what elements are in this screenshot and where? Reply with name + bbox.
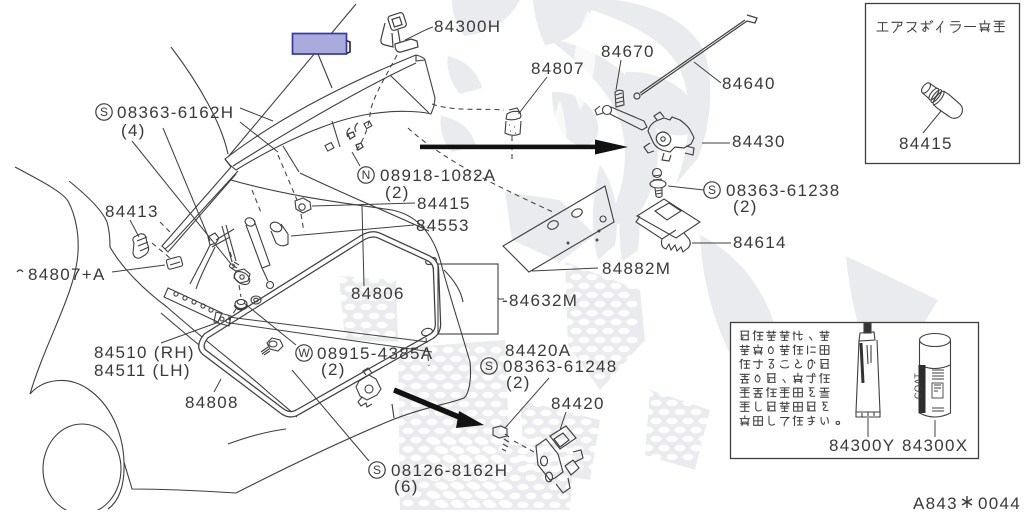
svg-text:84415: 84415	[417, 194, 471, 213]
svg-text:84300X: 84300X	[902, 436, 968, 455]
svg-text:W: W	[298, 346, 310, 360]
svg-text:84808: 84808	[185, 393, 239, 412]
svg-text:84430: 84430	[732, 132, 786, 151]
svg-text:84640: 84640	[722, 74, 776, 93]
svg-text:(2): (2)	[385, 183, 410, 202]
svg-text:84670: 84670	[601, 42, 655, 61]
svg-text:84807: 84807	[531, 59, 585, 78]
svg-text:84553: 84553	[416, 216, 470, 235]
svg-text:-84632M: -84632M	[502, 291, 578, 310]
svg-text:S: S	[373, 463, 381, 477]
svg-text:84882M: 84882M	[602, 259, 671, 278]
svg-text:COAT: COAT	[913, 373, 923, 399]
svg-text:N: N	[362, 168, 371, 182]
svg-text:84614: 84614	[733, 233, 787, 252]
svg-text:(2): (2)	[506, 373, 531, 392]
svg-text:84511 (LH): 84511 (LH)	[94, 361, 191, 380]
svg-text:84413: 84413	[105, 202, 159, 221]
svg-text:(6): (6)	[394, 477, 419, 496]
svg-text:A843: A843	[913, 494, 958, 510]
svg-text:(2): (2)	[321, 360, 346, 379]
svg-text:84415: 84415	[899, 134, 953, 153]
svg-text:0044: 0044	[978, 494, 1021, 510]
svg-text:(2): (2)	[733, 197, 758, 216]
svg-text:84510 (RH): 84510 (RH)	[94, 343, 195, 362]
svg-text:S: S	[708, 183, 716, 197]
svg-text:84806: 84806	[351, 284, 405, 303]
svg-text:08363-6162H: 08363-6162H	[117, 103, 234, 122]
svg-text:84420: 84420	[551, 394, 605, 413]
svg-text:84300Y: 84300Y	[829, 436, 895, 455]
svg-text:S: S	[485, 359, 493, 373]
svg-text:84807+A: 84807+A	[28, 265, 106, 284]
svg-text:(4): (4)	[121, 121, 146, 140]
svg-text:84300H: 84300H	[434, 17, 501, 36]
svg-text:S: S	[100, 105, 108, 119]
